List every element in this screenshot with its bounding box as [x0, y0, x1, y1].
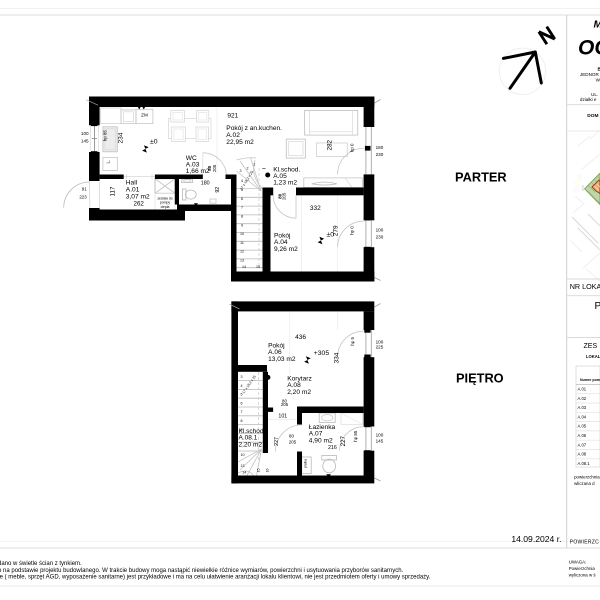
svg-text:3,07 m2: 3,07 m2 — [126, 193, 150, 200]
svg-text:JEDNOR: JEDNOR — [580, 72, 600, 77]
svg-text:DOM: DOM — [587, 113, 598, 119]
svg-text:Powierzchnie podano na podstaw: Powierzchnie podano na podstawie projekt… — [0, 568, 404, 574]
svg-text:230: 230 — [376, 235, 384, 240]
svg-text:227: 227 — [340, 435, 347, 446]
svg-text:NR LOKAL: NR LOKAL — [570, 282, 600, 291]
svg-text:+305: +305 — [314, 350, 330, 357]
svg-text:145: 145 — [81, 139, 89, 144]
svg-text:10: 10 — [241, 453, 245, 457]
svg-text:15: 15 — [257, 469, 261, 473]
svg-text:hp 85: hp 85 — [103, 130, 108, 142]
svg-text:91: 91 — [82, 187, 87, 192]
svg-text:8: 8 — [241, 419, 243, 423]
svg-text:A.08.1: A.08.1 — [578, 461, 591, 466]
svg-text:2: 2 — [247, 167, 249, 171]
svg-text:A.08: A.08 — [578, 452, 587, 457]
svg-text:wyliczona w ś: wyliczona w ś — [569, 572, 597, 577]
svg-text:11: 11 — [240, 241, 244, 245]
svg-text:LOKALU M: LOKALU M — [586, 354, 600, 359]
svg-text:205: 205 — [281, 192, 286, 200]
svg-text:pralka: pralka — [304, 459, 308, 468]
svg-text:12: 12 — [240, 250, 244, 254]
svg-text:A.07: A.07 — [578, 442, 587, 447]
svg-text:16: 16 — [266, 469, 270, 473]
svg-text:działki e: działki e — [580, 97, 597, 102]
svg-text:100: 100 — [376, 228, 384, 233]
svg-text:6: 6 — [241, 401, 243, 405]
svg-text:2,20 m2: 2,20 m2 — [287, 389, 311, 396]
svg-text:230: 230 — [376, 152, 384, 157]
svg-text:1,23 m2: 1,23 m2 — [273, 180, 297, 187]
svg-text:UWAGA:: UWAGA: — [569, 560, 587, 565]
svg-text:3: 3 — [241, 375, 243, 379]
svg-text:92: 92 — [215, 187, 221, 193]
svg-text:hp 5: hp 5 — [350, 336, 355, 345]
svg-text:13: 13 — [240, 259, 244, 263]
svg-text:±0: ±0 — [150, 138, 158, 145]
svg-text:15: 15 — [256, 265, 260, 269]
svg-text:ZM: ZM — [141, 113, 148, 118]
svg-text:W: W — [596, 78, 600, 83]
svg-text:7: 7 — [241, 206, 243, 210]
svg-text:334: 334 — [333, 352, 340, 363]
svg-text:A.05: A.05 — [578, 424, 587, 429]
svg-text:282: 282 — [326, 139, 333, 150]
svg-text:13: 13 — [241, 464, 245, 468]
svg-text:powierzchnia: powierzchnia — [574, 474, 600, 479]
svg-text:9,26 m2: 9,26 m2 — [274, 246, 298, 253]
svg-text:Numer pomie: Numer pomie — [580, 378, 600, 382]
svg-text:ZES: ZES — [584, 343, 598, 350]
svg-text:101: 101 — [278, 413, 287, 419]
svg-text:180: 180 — [376, 145, 384, 150]
svg-text:100: 100 — [81, 131, 89, 136]
svg-text:205: 205 — [289, 440, 297, 445]
svg-text:A.06: A.06 — [578, 433, 587, 438]
svg-text:436: 436 — [295, 334, 306, 341]
svg-text:Pokój z an.kuchen.: Pokój z an.kuchen. — [226, 125, 282, 132]
svg-text:P: P — [595, 301, 600, 312]
svg-text:A.02: A.02 — [226, 132, 240, 139]
svg-text:1: 1 — [253, 162, 255, 166]
svg-text:hp 0: hp 0 — [350, 143, 355, 152]
svg-text:14: 14 — [242, 265, 246, 269]
svg-text:OG: OG — [578, 37, 600, 60]
svg-text:POWIERZC: POWIERZC — [570, 540, 599, 546]
svg-text:A.01: A.01 — [578, 387, 587, 392]
svg-text:hp 85: hp 85 — [353, 430, 358, 442]
svg-text:921: 921 — [227, 113, 238, 120]
svg-text:332: 332 — [310, 205, 321, 212]
svg-text:4: 4 — [241, 384, 243, 388]
svg-text:100: 100 — [376, 432, 384, 437]
svg-text:234: 234 — [117, 132, 124, 143]
svg-text:80: 80 — [289, 434, 294, 439]
svg-text:Powierzchnia: Powierzchnia — [569, 566, 596, 571]
svg-text:7: 7 — [241, 410, 243, 414]
svg-text:180: 180 — [201, 180, 210, 186]
svg-text:hp 0: hp 0 — [350, 226, 355, 235]
svg-text:A.02: A.02 — [578, 396, 587, 401]
svg-text:ciepła: ciepła — [161, 205, 170, 209]
svg-text:3: 3 — [240, 169, 242, 173]
svg-text:L.: L. — [106, 160, 111, 164]
svg-text:wliczana d: wliczana d — [574, 481, 595, 486]
svg-text:22,95 m2: 22,95 m2 — [226, 139, 254, 146]
svg-text:205: 205 — [281, 402, 289, 407]
svg-text:M: M — [594, 19, 600, 31]
svg-text:10: 10 — [240, 232, 244, 236]
svg-text:117: 117 — [110, 186, 117, 196]
svg-text:9: 9 — [241, 223, 243, 227]
svg-text:Wszystkie wymiary podano w świ: Wszystkie wymiary podano w świetle ścian… — [0, 561, 82, 567]
svg-text:14.09.2024 r.: 14.09.2024 r. — [511, 534, 561, 544]
svg-text:227: 227 — [274, 437, 280, 446]
svg-text:225: 225 — [376, 345, 384, 350]
svg-text:2,20 m2: 2,20 m2 — [239, 441, 263, 448]
svg-text:Wyposażenie ( meble, sprzęt AG: Wyposażenie ( meble, sprzęt AGD, wyposaż… — [0, 575, 431, 581]
svg-text:14: 14 — [242, 470, 246, 474]
svg-text:8: 8 — [241, 215, 243, 219]
svg-text:A.03: A.03 — [578, 405, 587, 410]
svg-text:A.04: A.04 — [578, 414, 587, 419]
svg-text:223: 223 — [79, 194, 87, 199]
svg-text:279: 279 — [333, 225, 340, 236]
svg-text:145: 145 — [376, 439, 384, 444]
svg-text:PIĘTRO: PIĘTRO — [456, 370, 504, 385]
svg-text:PARTER: PARTER — [455, 169, 507, 184]
svg-text:216: 216 — [328, 445, 337, 451]
svg-text:262: 262 — [134, 201, 145, 208]
svg-text:6: 6 — [241, 197, 243, 201]
svg-text:13,03 m2: 13,03 m2 — [268, 356, 296, 363]
svg-text:4,90 m2: 4,90 m2 — [309, 437, 333, 444]
svg-text:205: 205 — [212, 164, 217, 172]
